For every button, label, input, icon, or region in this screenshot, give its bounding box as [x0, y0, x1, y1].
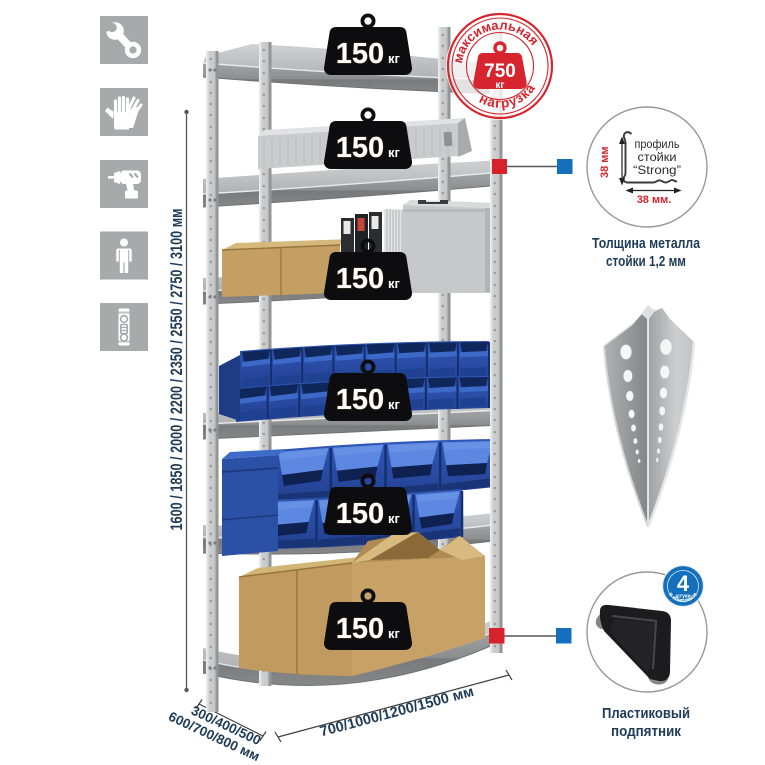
svg-text:стойки 1,2 мм: стойки 1,2 мм	[606, 253, 686, 270]
svg-text:150: 150	[336, 132, 384, 164]
svg-text:38 мм: 38 мм	[599, 146, 611, 178]
svg-text:750: 750	[484, 61, 516, 82]
svg-text:профиль: профиль	[635, 139, 680, 151]
svg-text:кг: кг	[388, 626, 401, 641]
svg-text:стойки: стойки	[638, 152, 677, 164]
svg-text:Пластиковый: Пластиковый	[602, 705, 690, 722]
svg-text:кг: кг	[388, 51, 401, 66]
svg-text:150: 150	[336, 38, 384, 70]
svg-text:кг: кг	[388, 145, 401, 160]
svg-text:“Strong”: “Strong”	[633, 165, 681, 177]
svg-text:кг: кг	[388, 397, 401, 412]
svg-text:150: 150	[336, 263, 384, 295]
svg-text:4: 4	[677, 571, 690, 596]
svg-text:кг: кг	[495, 80, 504, 91]
svg-text:штуки: штуки	[675, 594, 690, 600]
svg-text:1600 / 1850 / 2000 / 2200 / 23: 1600 / 1850 / 2000 / 2200 / 2350 / 2550 …	[168, 209, 186, 531]
svg-text:подпятник: подпятник	[611, 723, 681, 740]
svg-text:кг: кг	[388, 511, 401, 526]
svg-text:150: 150	[336, 498, 384, 530]
svg-text:Толщина металла: Толщина металла	[592, 235, 701, 252]
svg-text:150: 150	[336, 613, 384, 645]
svg-text:38 мм.: 38 мм.	[637, 194, 672, 206]
svg-text:кг: кг	[388, 276, 401, 291]
svg-text:150: 150	[336, 384, 384, 416]
